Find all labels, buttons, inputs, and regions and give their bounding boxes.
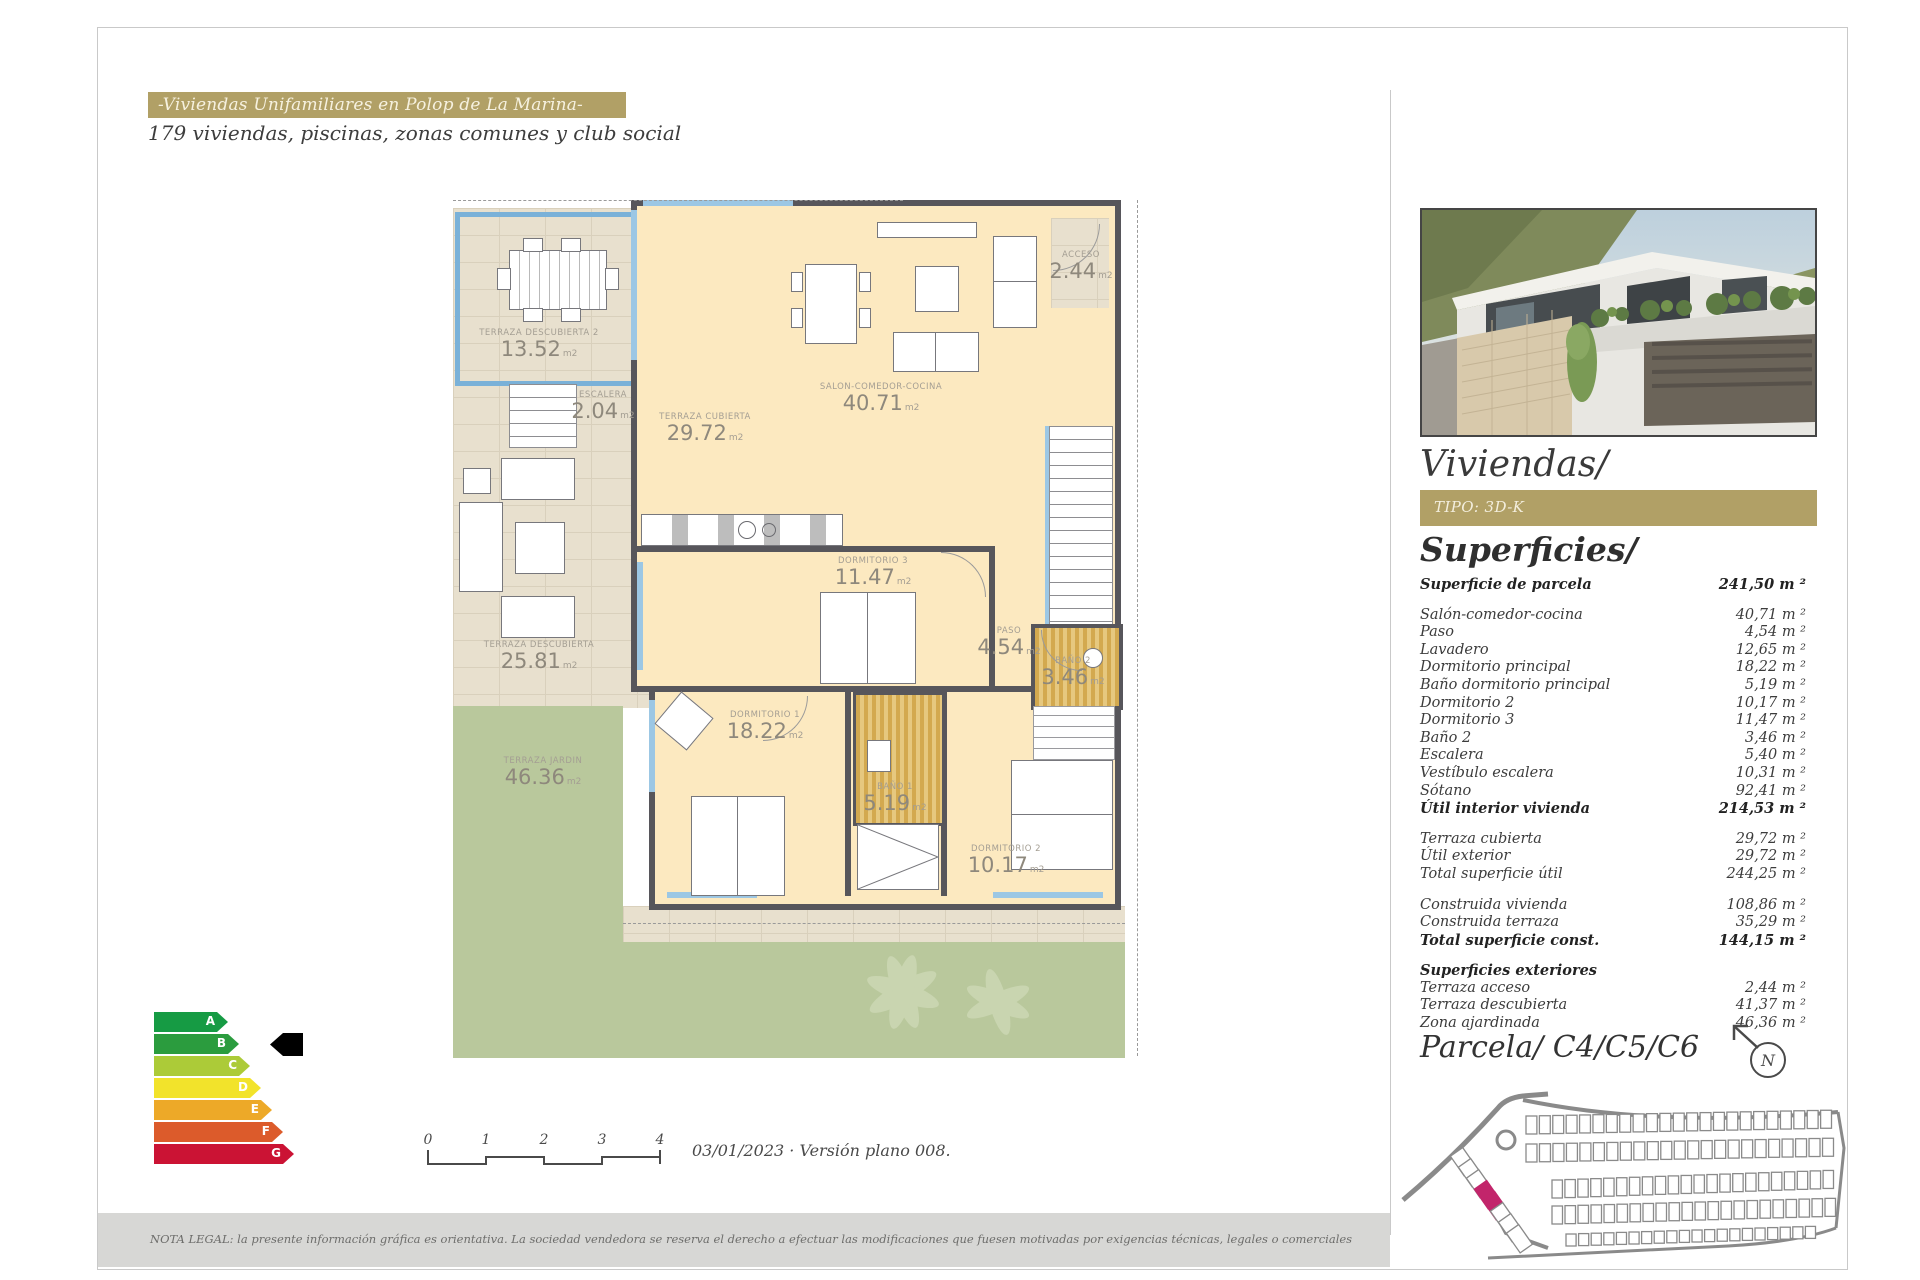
chair (523, 238, 543, 252)
superficies-row: Construida vivienda108,86 m ² (1420, 897, 1812, 915)
energy-pointer (270, 1033, 303, 1056)
svg-text:3: 3 (598, 1132, 607, 1148)
superficies-row: Paso4,54 m ² (1420, 624, 1812, 642)
wall (637, 546, 993, 552)
superficies-row: Baño dormitorio principal5,19 m ² (1420, 677, 1812, 695)
energy-grade-E: E (154, 1100, 272, 1120)
escalera-stairs (509, 384, 577, 448)
tipo-label: TIPO: 3D-K (1420, 490, 1817, 516)
wall (845, 692, 851, 896)
svg-text:2: 2 (539, 1132, 549, 1148)
plot-boundary (1137, 200, 1138, 1056)
bed-dorm2 (1011, 760, 1113, 870)
superficies-row: Terraza descubierta41,37 m ² (1420, 997, 1812, 1015)
sidebar-divider (1390, 90, 1391, 1235)
superficies-row: Construida terraza35,29 m ² (1420, 914, 1812, 932)
sink-icon (867, 740, 891, 772)
garden-bottom (453, 942, 1125, 1058)
superficies-row: Lavadero12,65 m ² (1420, 642, 1812, 660)
svg-text:4: 4 (655, 1132, 665, 1148)
sofa (893, 332, 979, 372)
main-stairs (1049, 426, 1113, 626)
svg-text:1: 1 (482, 1132, 491, 1148)
kitchen-counter (641, 514, 843, 546)
energy-grade-B: B (154, 1034, 239, 1054)
coffee-table (915, 266, 959, 312)
chair (561, 238, 581, 252)
energy-grade-G: G (154, 1144, 294, 1164)
date-version: 03/01/2023 · Versión plano 008. (692, 1141, 951, 1160)
superficies-row: Total superficie útil244,25 m ² (1420, 866, 1812, 884)
tv-unit (877, 222, 977, 238)
sofa (993, 236, 1037, 328)
superficies-row: Útil exterior29,72 m ² (1420, 848, 1812, 866)
bed-dorm3 (820, 592, 916, 684)
chair (791, 308, 803, 328)
page-subtitle: 179 viviendas, piscinas, zonas comunes y… (148, 121, 681, 145)
superficies-row: Dormitorio 210,17 m ² (1420, 695, 1812, 713)
viviendas-heading: Viviendas/ (1420, 444, 1608, 485)
legal-band: NOTA LEGAL: la presente información gráf… (98, 1213, 1390, 1267)
legal-note: NOTA LEGAL: la presente información gráf… (98, 1213, 1390, 1246)
stair-rail (1045, 426, 1049, 624)
tipo-banner: TIPO: 3D-K (1420, 490, 1817, 526)
superficies-row: Terraza acceso2,44 m ² (1420, 980, 1812, 998)
plan-sheet: -Viviendas Unifamiliares en Polop de La … (0, 0, 1920, 1280)
chair (561, 308, 581, 322)
site-map (1398, 1088, 1848, 1266)
energy-grade-D: D (154, 1078, 261, 1098)
chair (791, 272, 803, 292)
energy-label: ABCDEFG (154, 1012, 354, 1172)
superficies-row: Superficies exteriores (1420, 962, 1812, 980)
superficies-row: Dormitorio 311,47 m ² (1420, 712, 1812, 730)
svg-text:0: 0 (424, 1132, 433, 1148)
superficies-row: Salón-comedor-cocina40,71 m ² (1420, 607, 1812, 625)
outdoor-table (515, 522, 565, 574)
svg-text:N: N (1760, 1051, 1776, 1070)
superficies-row: Sótano92,41 m ² (1420, 783, 1812, 801)
superficies-row: Baño 23,46 m ² (1420, 730, 1812, 748)
chair (497, 268, 511, 290)
outdoor-sofa (501, 596, 575, 638)
floor-plan: TERRAZA DESCUBIERTA 2 13.52m2 ESCALERA 2… (453, 200, 1143, 1058)
bed-dorm1 (691, 796, 785, 896)
superficies-row: Total superficie const.144,15 m ² (1420, 932, 1812, 950)
outdoor-dining-table (509, 250, 607, 310)
superficies-row: Dormitorio principal18,22 m ² (1420, 659, 1812, 677)
render-photo-art (1422, 210, 1815, 435)
superficies-heading: Superficies/ (1420, 530, 1638, 569)
dining-table (805, 264, 857, 344)
energy-grade-C: C (154, 1056, 250, 1076)
title-banner: -Viviendas Unifamiliares en Polop de La … (148, 92, 626, 118)
chair (859, 308, 871, 328)
page-title: -Viviendas Unifamiliares en Polop de La … (148, 92, 626, 115)
window-strip (649, 700, 655, 792)
energy-grade-A: A (154, 1012, 228, 1032)
window-strip (637, 562, 643, 670)
window-strip (631, 210, 637, 360)
superficies-table: Superficie de parcela241,50 m ²Salón-com… (1420, 576, 1812, 1046)
window-strip (993, 892, 1103, 898)
energy-grade-F: F (154, 1122, 283, 1142)
superficies-row: Superficie de parcela241,50 m ² (1420, 576, 1812, 594)
shower (857, 824, 939, 890)
outdoor-sofa (459, 502, 503, 592)
palm-watermark (843, 942, 1063, 1058)
walkway (623, 906, 1125, 942)
superficies-row: Terraza cubierta29,72 m ² (1420, 831, 1812, 849)
chair (523, 308, 543, 322)
side-table (463, 468, 491, 494)
plot-boundary (453, 200, 903, 201)
outdoor-sofa (501, 458, 575, 500)
wall (989, 546, 995, 686)
parcela-heading: Parcela/ C4/C5/C6 (1420, 1030, 1699, 1065)
chair (859, 272, 871, 292)
chair (605, 268, 619, 290)
scale-bar: 0 1 2 3 4 (420, 1130, 676, 1172)
lower-stairs (1033, 706, 1115, 760)
superficies-row: Útil interior vivienda214,53 m ² (1420, 800, 1812, 818)
superficies-row: Escalera5,40 m ² (1420, 747, 1812, 765)
render-photo (1420, 208, 1817, 437)
compass-icon: N (1720, 1018, 1800, 1084)
toilet-icon (1083, 648, 1103, 668)
superficies-row: Vestíbulo escalera10,31 m ² (1420, 765, 1812, 783)
